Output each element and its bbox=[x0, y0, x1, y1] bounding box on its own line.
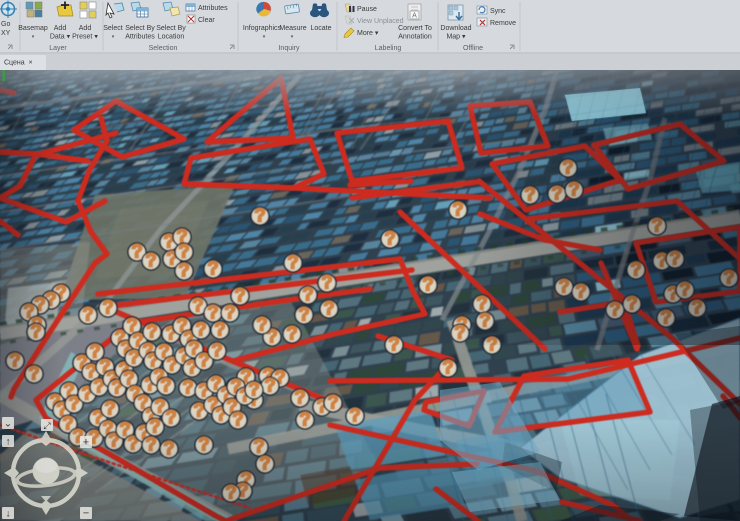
svg-text:Data ▾: Data ▾ bbox=[50, 34, 71, 41]
svg-text:Clear: Clear bbox=[198, 17, 215, 24]
svg-text:Preset ▾: Preset ▾ bbox=[72, 34, 98, 41]
svg-text:View Unplaced: View Unplaced bbox=[357, 18, 404, 25]
svg-text:Offline: Offline bbox=[463, 45, 483, 52]
svg-text:Layer: Layer bbox=[49, 45, 67, 52]
svg-text:Measure: Measure bbox=[279, 25, 306, 32]
svg-text:⤢: ⤢ bbox=[42, 421, 50, 431]
svg-text:Convert To: Convert To bbox=[398, 25, 432, 32]
svg-text:+: + bbox=[83, 437, 89, 449]
svg-text:−: − bbox=[83, 508, 89, 520]
svg-text:Map ▾: Map ▾ bbox=[446, 34, 466, 41]
svg-text:Remove: Remove bbox=[490, 20, 516, 27]
svg-text:↓: ↓ bbox=[6, 509, 11, 520]
svg-text:Sync: Sync bbox=[490, 8, 506, 15]
svg-text:Inquiry: Inquiry bbox=[278, 45, 300, 52]
svg-text:Select: Select bbox=[103, 25, 123, 32]
svg-text:A: A bbox=[412, 13, 417, 20]
svg-text:Add: Add bbox=[54, 25, 67, 32]
svg-text:XY: XY bbox=[1, 30, 11, 37]
svg-text:Labeling: Labeling bbox=[375, 45, 402, 52]
svg-text:Attributes: Attributes bbox=[125, 34, 155, 41]
svg-text:Basemap: Basemap bbox=[18, 25, 48, 32]
svg-text:Annotation: Annotation bbox=[398, 34, 432, 41]
svg-text:⌄: ⌄ bbox=[4, 419, 12, 430]
svg-text:Pause: Pause bbox=[357, 6, 377, 13]
svg-text:Attributes: Attributes bbox=[198, 5, 228, 12]
svg-text:Selection: Selection bbox=[149, 45, 178, 52]
svg-text:Location: Location bbox=[158, 34, 185, 41]
svg-text:Select By: Select By bbox=[125, 25, 155, 32]
svg-text:Infographics: Infographics bbox=[243, 25, 282, 32]
svg-text:↑: ↑ bbox=[6, 437, 11, 448]
svg-text:Download: Download bbox=[440, 25, 471, 32]
svg-text:Go: Go bbox=[1, 21, 10, 28]
svg-text:Сцена ×: Сцена × bbox=[4, 60, 33, 67]
svg-text:Add: Add bbox=[79, 25, 92, 32]
svg-text:Select By: Select By bbox=[156, 25, 186, 32]
svg-text:Locate: Locate bbox=[310, 25, 331, 32]
svg-text:More ▾: More ▾ bbox=[357, 30, 379, 37]
